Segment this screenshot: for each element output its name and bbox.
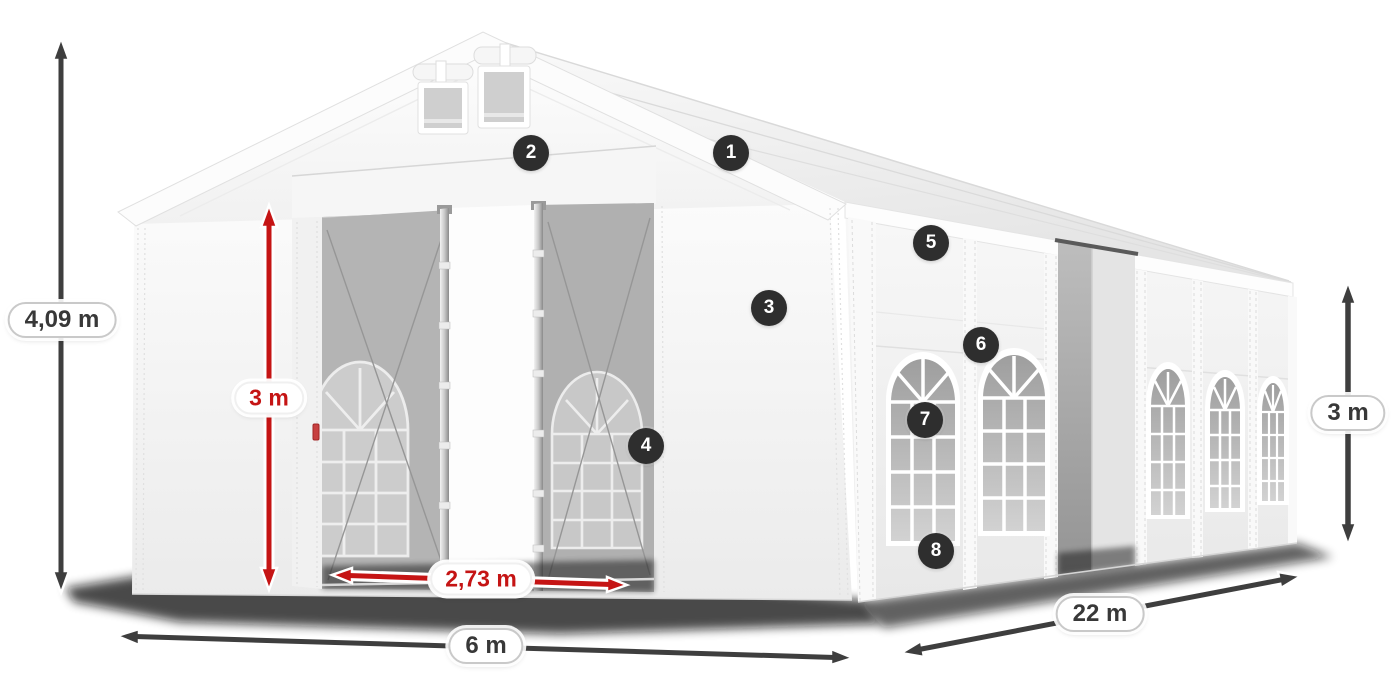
dimension-value: 6 m (465, 634, 506, 658)
callout-number: 1 (726, 142, 737, 164)
sliding-door-panel (1092, 247, 1135, 570)
dimension-label-entrance-height: 3 m (234, 382, 304, 415)
side-window-3 (1146, 362, 1190, 519)
callout-hotspot-7[interactable]: 7 (907, 402, 943, 438)
tent-illustration (0, 0, 1400, 700)
callout-number: 3 (764, 297, 775, 319)
gable-vent-right (474, 44, 536, 128)
vent-strap (500, 44, 510, 66)
tent-dimension-diagram: 4,09 m 3 m 2,73 m 6 m 22 m 3 m 1 2 3 4 5… (0, 0, 1400, 700)
door-handle (313, 424, 319, 440)
interior-wall-left (312, 210, 449, 589)
entrance-open-center (449, 205, 534, 589)
callout-number: 8 (931, 540, 942, 562)
dimension-label-total-height: 4,09 m (8, 302, 117, 338)
dimension-value: 3 m (1327, 401, 1368, 425)
callout-hotspot-5[interactable]: 5 (913, 225, 949, 261)
dimension-value: 4,09 m (25, 308, 100, 332)
callout-number: 7 (920, 409, 931, 431)
callout-hotspot-8[interactable]: 8 (918, 533, 954, 569)
side-window-1 (886, 352, 960, 546)
side-window-2 (978, 348, 1050, 536)
side-wall (845, 202, 1297, 602)
entrance-opening (292, 201, 654, 592)
vent-strap (436, 61, 446, 82)
callout-hotspot-4[interactable]: 4 (628, 428, 664, 464)
side-doorway-open (1055, 240, 1138, 576)
callout-hotspot-6[interactable]: 6 (963, 327, 999, 363)
callout-hotspot-2[interactable]: 2 (513, 135, 549, 171)
side-window-5 (1257, 376, 1289, 505)
dimension-value: 22 m (1073, 602, 1128, 626)
callout-number: 4 (641, 435, 652, 457)
callout-hotspot-3[interactable]: 3 (751, 290, 787, 326)
dimension-value: 2,73 m (445, 568, 517, 591)
dimension-value: 3 m (249, 387, 289, 410)
side-window-4 (1205, 370, 1245, 512)
dimension-label-entrance-width: 2,73 m (430, 563, 532, 596)
callout-number: 5 (926, 232, 937, 254)
callout-number: 2 (526, 142, 537, 164)
dimension-label-front-width: 6 m (448, 628, 523, 664)
gable-vent-left (413, 61, 473, 134)
callout-number: 6 (976, 334, 987, 356)
dimension-label-side-length: 22 m (1056, 596, 1145, 632)
callout-hotspot-1[interactable]: 1 (713, 135, 749, 171)
dimension-label-side-height: 3 m (1310, 395, 1385, 431)
interior-wall-right (534, 203, 654, 592)
